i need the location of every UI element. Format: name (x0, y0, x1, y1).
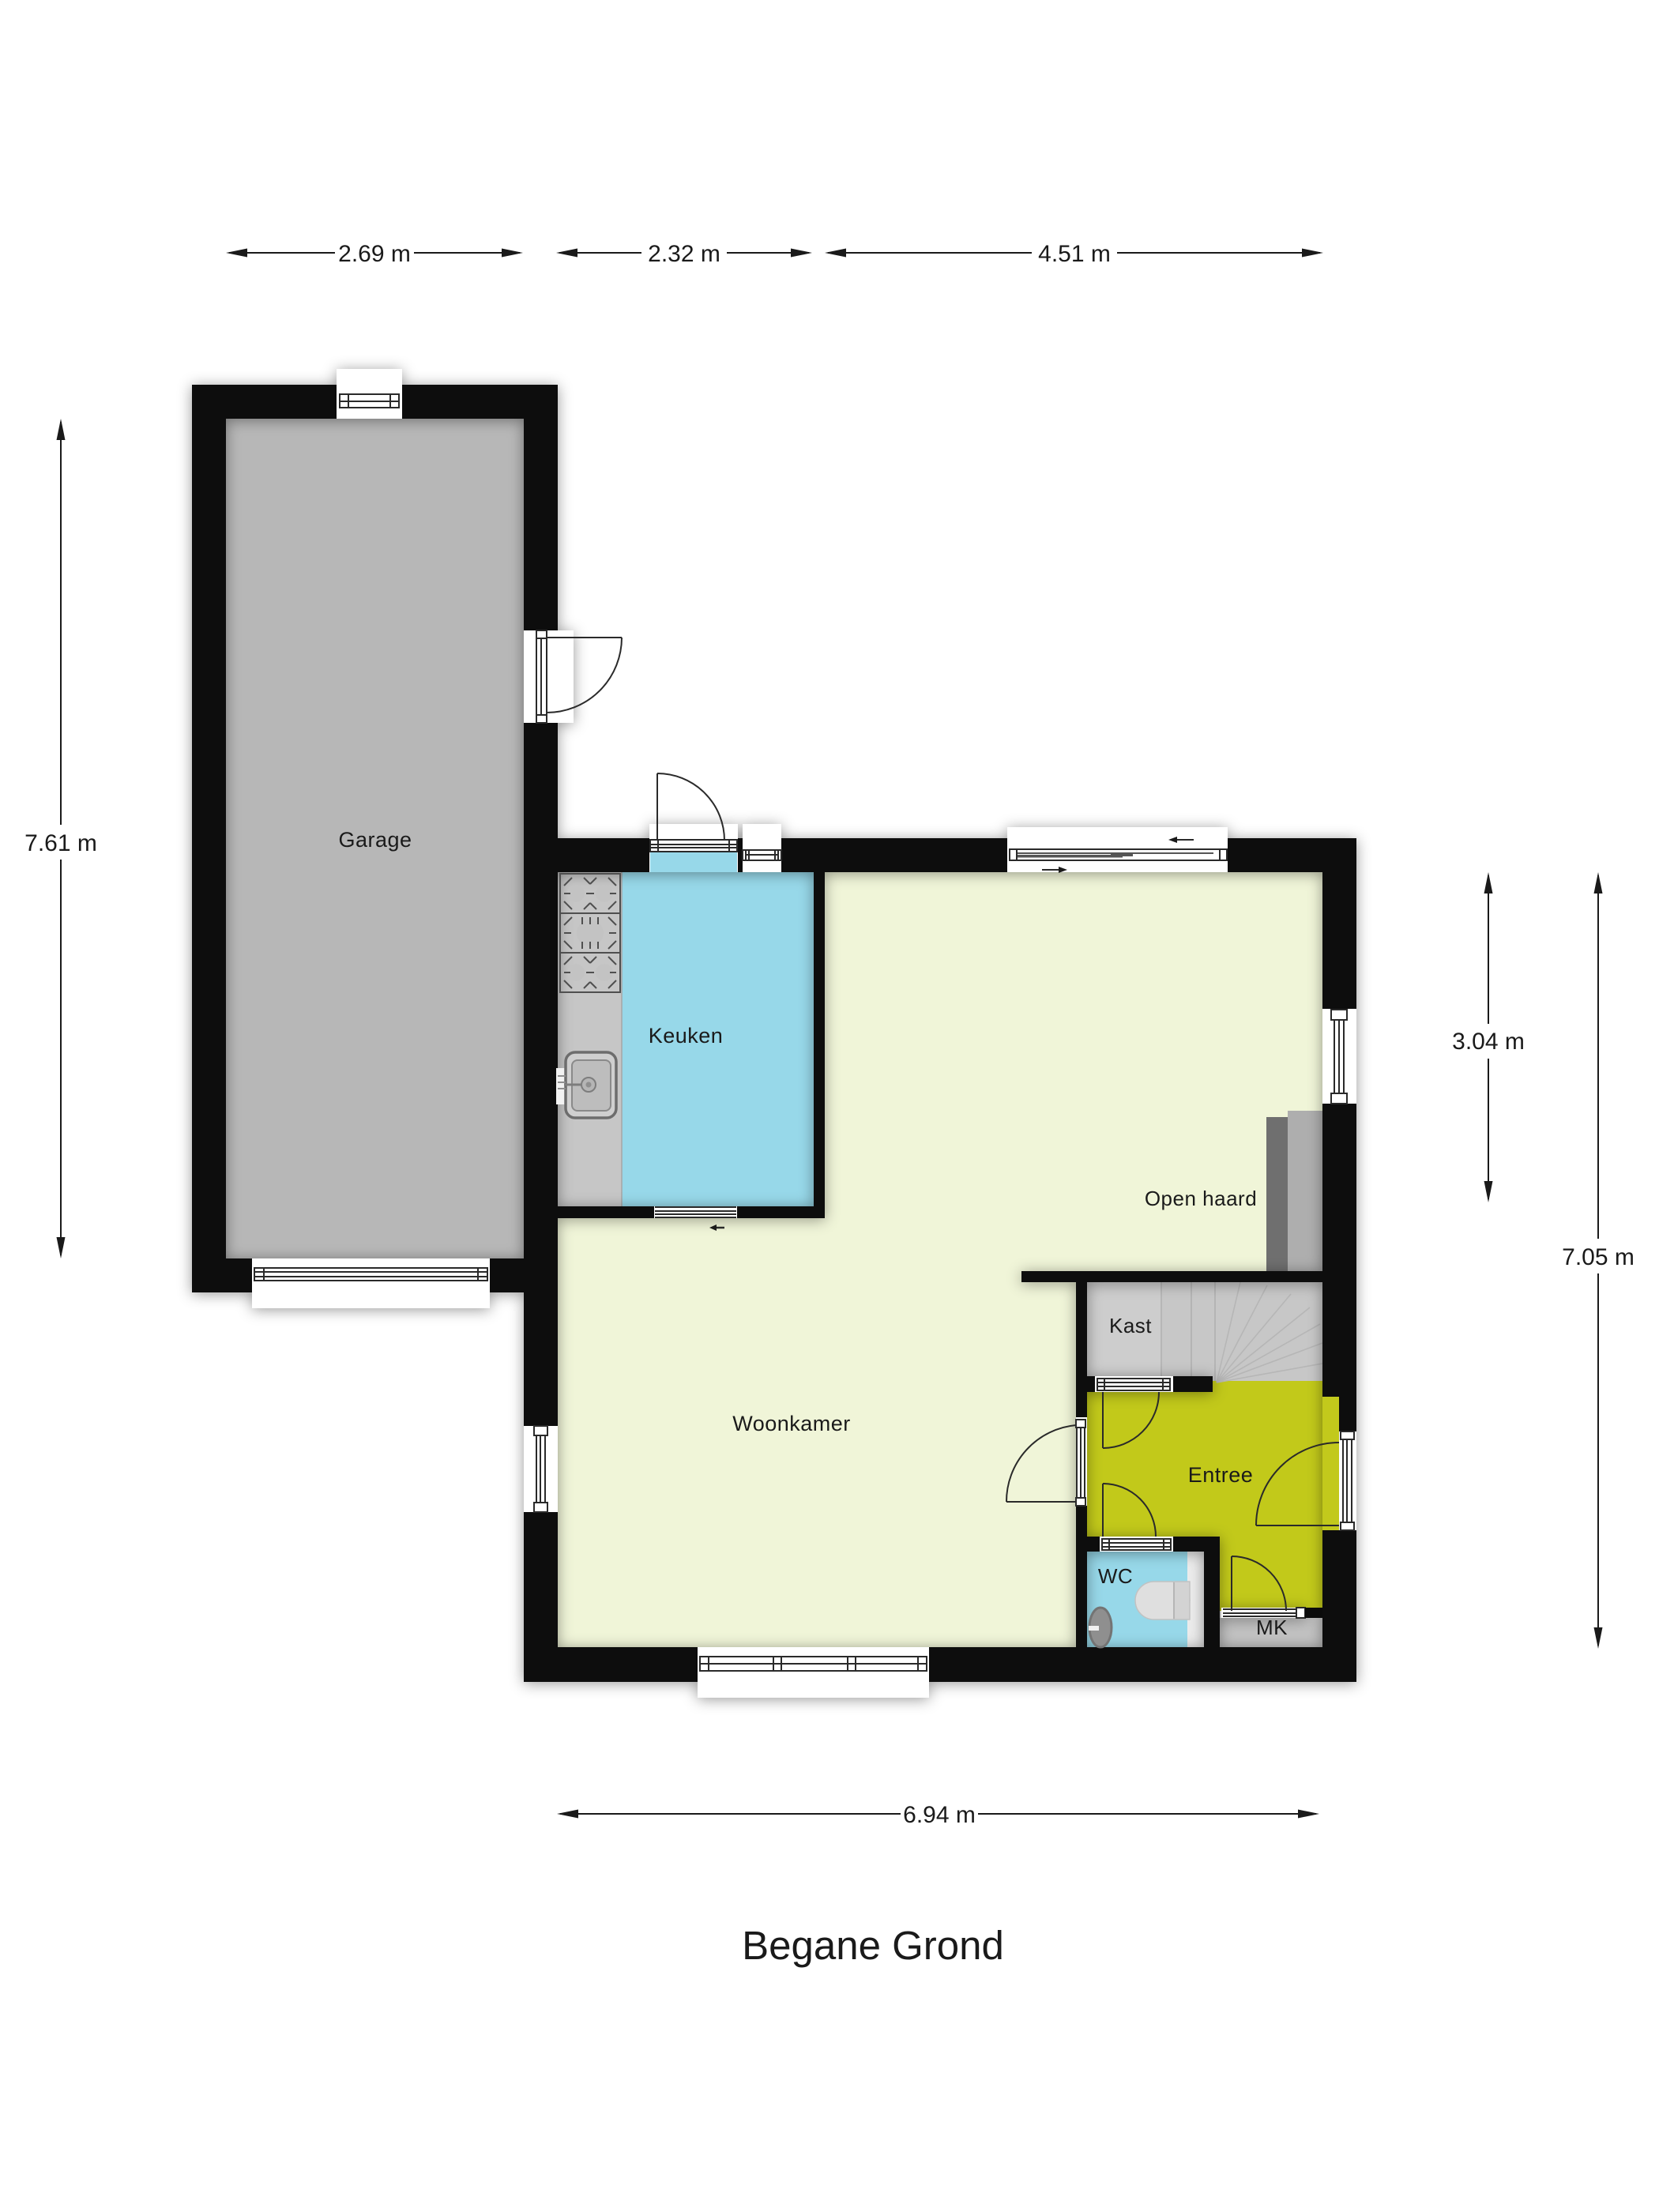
svg-text:4.51 m: 4.51 m (1038, 241, 1111, 267)
svg-text:Begane Grond: Begane Grond (742, 1923, 1004, 1968)
svg-text:MK: MK (1256, 1616, 1288, 1639)
svg-text:2.32 m: 2.32 m (648, 241, 720, 267)
svg-text:3.04 m: 3.04 m (1452, 1029, 1525, 1055)
svg-text:Entree: Entree (1188, 1463, 1254, 1487)
svg-text:7.05 m: 7.05 m (1562, 1244, 1635, 1270)
svg-text:6.94 m: 6.94 m (903, 1802, 976, 1828)
svg-text:WC: WC (1098, 1564, 1133, 1588)
svg-text:Kast: Kast (1109, 1314, 1152, 1337)
svg-text:Woonkamer: Woonkamer (732, 1412, 851, 1435)
svg-text:Keuken: Keuken (649, 1024, 724, 1048)
svg-text:Garage: Garage (338, 828, 412, 852)
svg-text:2.69 m: 2.69 m (338, 241, 411, 267)
svg-text:Open haard: Open haard (1145, 1187, 1257, 1210)
svg-text:7.61 m: 7.61 m (24, 830, 97, 856)
